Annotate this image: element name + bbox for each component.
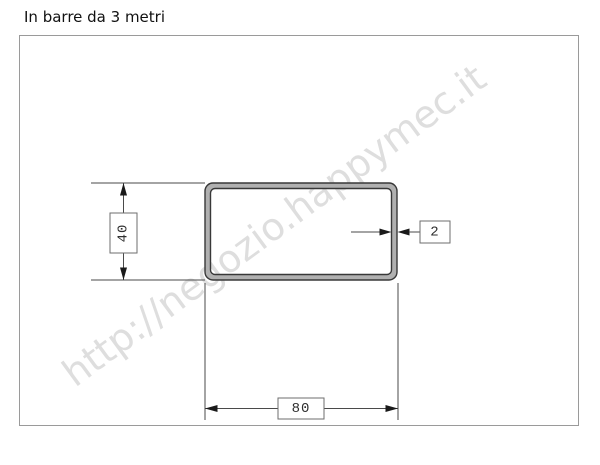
width-dim-arrow-left-icon xyxy=(205,405,218,412)
height-dim-arrow-down-icon xyxy=(120,268,127,281)
technical-drawing-svg: http://negozio.happymec.it 40 80 2 xyxy=(20,36,578,425)
width-dim-value: 80 xyxy=(292,401,311,417)
drawing-frame: http://negozio.happymec.it 40 80 2 xyxy=(19,35,579,426)
thickness-dim-arrow-right-icon xyxy=(380,229,392,236)
page-title: In barre da 3 metri xyxy=(24,8,165,27)
height-dim-value: 40 xyxy=(116,224,132,243)
height-dim-arrow-up-icon xyxy=(120,183,127,196)
thickness-dim-arrow-left-icon xyxy=(398,229,410,236)
width-dim-arrow-right-icon xyxy=(386,405,399,412)
thickness-dim-value: 2 xyxy=(430,225,439,241)
